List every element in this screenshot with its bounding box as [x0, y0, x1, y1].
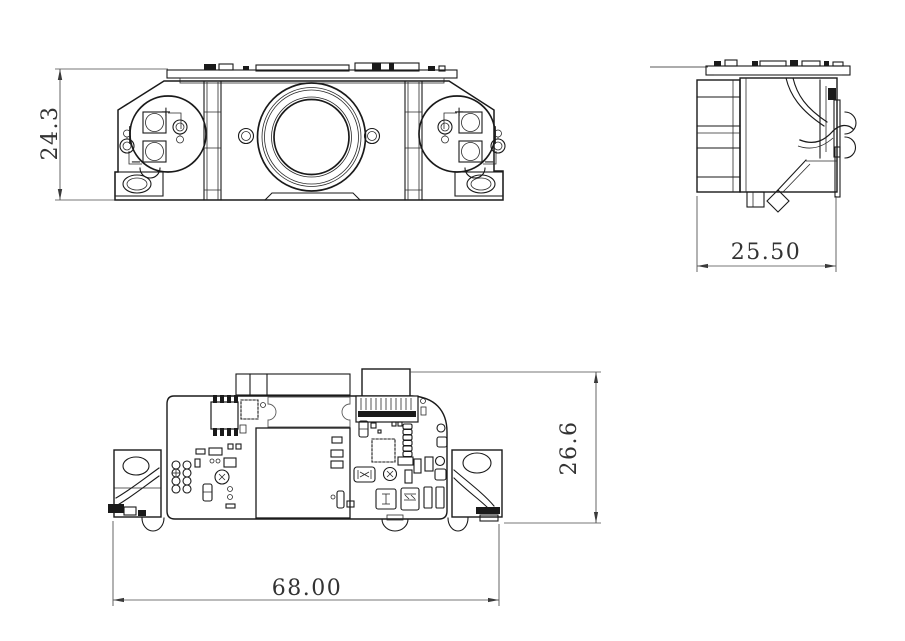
led-assembly-left: [120, 96, 206, 178]
dimension-arrow: [58, 69, 62, 80]
main-ic: [256, 428, 350, 518]
resonator: [401, 488, 419, 510]
mounting-peg: [747, 192, 764, 207]
dim-text-side-width: 25.50: [731, 240, 801, 265]
side-foot: [747, 160, 837, 212]
dimension-arrow: [594, 372, 598, 383]
angled-foot: [767, 190, 789, 212]
housing-bump: [142, 518, 164, 531]
front-pcb-strip: [167, 63, 457, 83]
bottom-view: 68.00 26.6: [108, 369, 601, 606]
engineering-drawing-canvas: + − 24.3: [0, 0, 905, 641]
led-bump: [845, 112, 856, 134]
dim-text-overall-width: 68.00: [272, 576, 342, 601]
side-led-bumps: [845, 112, 856, 158]
ic-small: [372, 439, 395, 462]
wire: [454, 470, 494, 506]
front-view: 24.3: [38, 63, 505, 200]
screw-right: [384, 468, 397, 481]
wire: [116, 468, 159, 498]
dimension-arrow: [488, 598, 499, 602]
dimension-arrow: [697, 264, 708, 268]
bottom-housing-band: [236, 374, 350, 395]
side-body-outline: [740, 78, 837, 192]
diode-package: [354, 467, 375, 482]
bottom-recess-line: [265, 193, 360, 200]
via-cluster: [172, 461, 191, 493]
led-bump: [845, 137, 856, 158]
side-lens-barrel: [697, 80, 740, 192]
ic-small: [241, 400, 258, 419]
bottom-lug-right: [448, 450, 502, 531]
dim-text-bottom-height: 26.6: [557, 421, 582, 476]
side-width-dimension: 25.50: [697, 196, 836, 272]
wire: [454, 478, 488, 508]
side-view: 25.50: [650, 60, 856, 272]
dimension-arrow: [113, 598, 124, 602]
shield-plate: [268, 397, 350, 427]
flex-connector: [356, 396, 418, 422]
dimension-arrow: [825, 264, 836, 268]
smd-parts-left: [195, 444, 241, 508]
mounting-hole: [463, 453, 491, 473]
lens-inner-ring: [274, 100, 349, 175]
wire: [116, 476, 159, 506]
lens-assembly: [239, 83, 380, 191]
dim-text-front-height: 24.3: [38, 106, 63, 161]
drawing-sheet: + − 24.3: [0, 0, 905, 641]
interface-connector: [362, 369, 410, 398]
bottom-lug-left: [108, 450, 164, 531]
front-height-dimension: 24.3: [38, 69, 168, 200]
overall-width-dimension: 68.00: [113, 521, 499, 606]
front-foot-right: [455, 172, 503, 196]
lens-side-screw: [365, 129, 380, 144]
dimension-arrow: [594, 512, 598, 523]
chassis-column-left: [204, 82, 221, 200]
mounting-hole: [123, 457, 149, 475]
crystal: [376, 489, 396, 509]
housing-bump-center: [382, 519, 408, 531]
dimension-arrow: [58, 189, 62, 200]
ic-8pin: [211, 395, 238, 436]
housing-bump: [448, 518, 468, 531]
inductor-coil: [403, 424, 412, 457]
screw-left: [215, 470, 229, 484]
side-pcb-strip: [706, 60, 850, 75]
lens-side-screw: [239, 129, 254, 144]
